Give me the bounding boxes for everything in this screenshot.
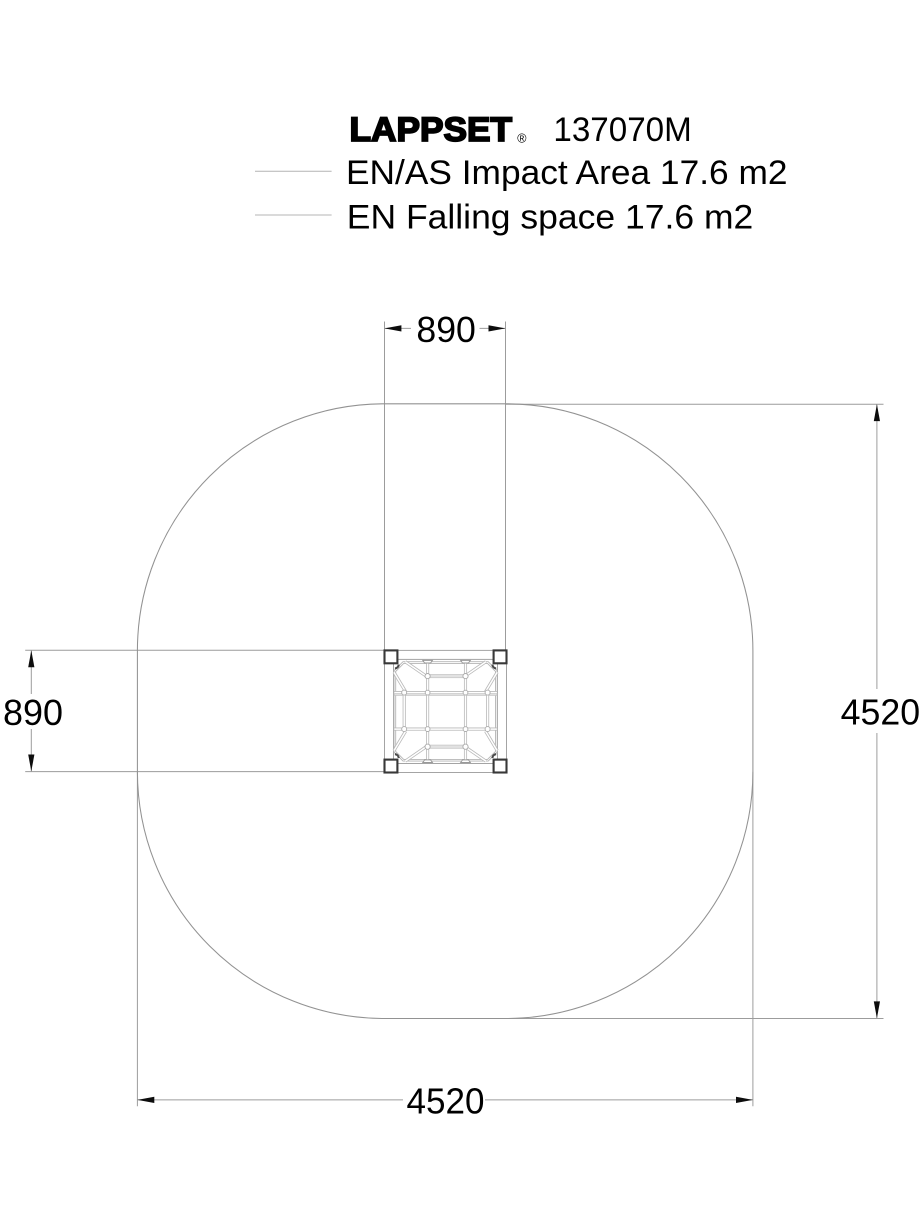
svg-text:137070M: 137070M <box>553 111 691 149</box>
svg-text:LAPPSET: LAPPSET <box>350 111 513 149</box>
svg-text:4520: 4520 <box>407 1081 485 1122</box>
svg-text:890: 890 <box>416 309 476 350</box>
svg-text:EN Falling space 17.6 m2: EN Falling space 17.6 m2 <box>347 199 754 237</box>
svg-text:EN/AS Impact Area 17.6 m2: EN/AS Impact Area 17.6 m2 <box>346 154 788 192</box>
svg-text:®: ® <box>517 132 527 146</box>
svg-text:4520: 4520 <box>841 691 920 732</box>
svg-text:890: 890 <box>3 692 63 733</box>
